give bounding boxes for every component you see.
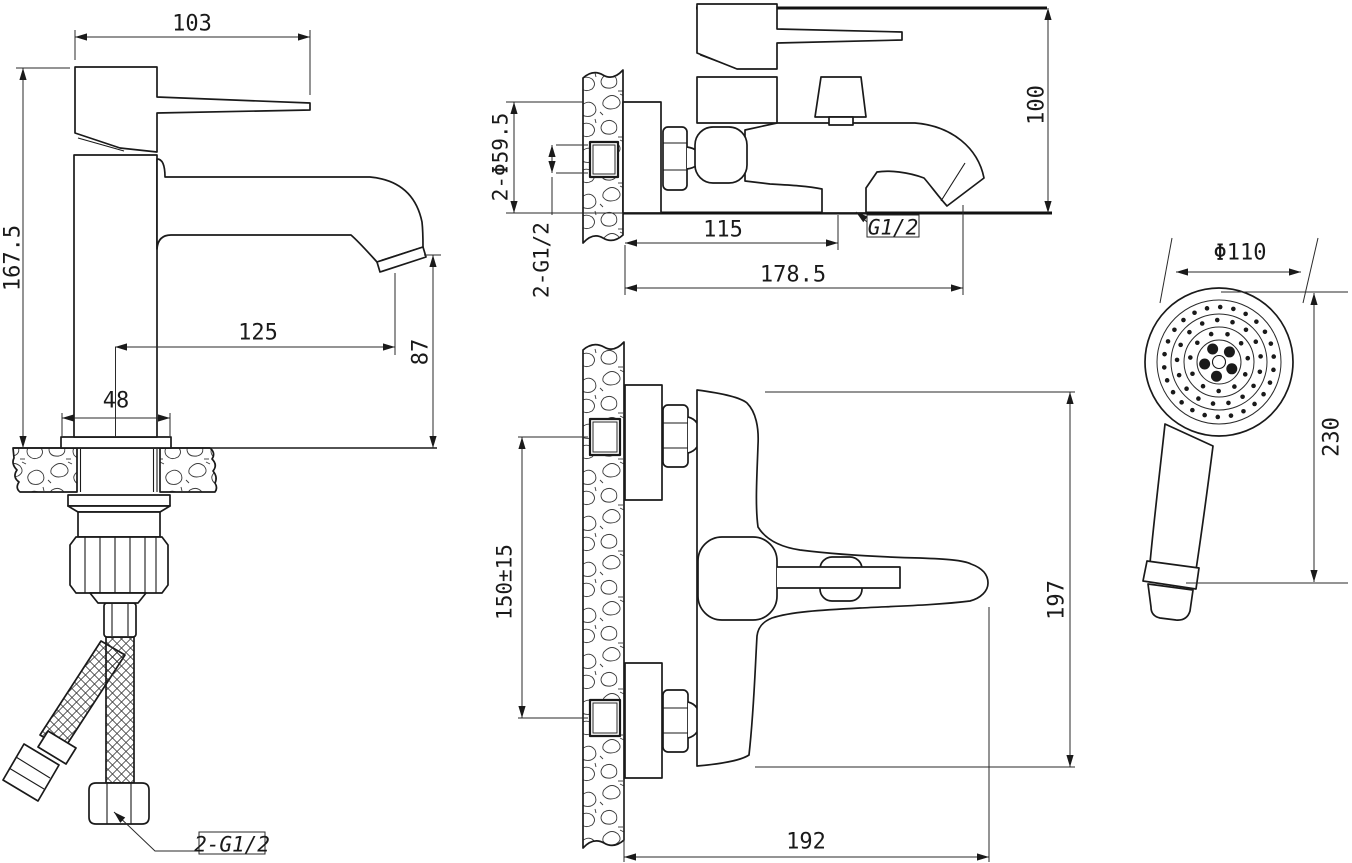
- drawing-sheet: 103 167.5 125 87: [0, 0, 1352, 863]
- wall-inlet-lower: [590, 700, 620, 736]
- shower-head: [1145, 288, 1293, 436]
- dim-text-spout-reach-side: 178.5: [760, 263, 826, 288]
- faucet-handle: [75, 67, 310, 152]
- faucet-spout: [157, 159, 423, 262]
- handle-lever-front: [777, 567, 900, 588]
- connection-nut-lower: [663, 690, 700, 752]
- dim-text-spout-height: 87: [409, 339, 434, 366]
- valve-body-side: [697, 77, 777, 123]
- hose-top-nut: [104, 603, 136, 637]
- shower-handle: [1143, 424, 1213, 620]
- ball-joint-cover: [695, 127, 747, 183]
- connection-nut-upper: [663, 405, 700, 467]
- dim-text-spout-reach: 125: [238, 321, 278, 346]
- escutcheon-side: [623, 102, 661, 213]
- dim-text-escutcheon-diameter: 2-Φ59.5: [488, 113, 512, 202]
- handle-inlet-nut: [1148, 584, 1193, 620]
- dim-height-above-datum: 100: [1025, 8, 1052, 213]
- dim-shower-outlet-offset: 115: [625, 215, 838, 250]
- dim-text-total-height: 167.5: [1, 225, 26, 291]
- escutcheon-lower: [625, 663, 662, 778]
- label-text-shower-outlet-thread: G1/2: [868, 215, 919, 239]
- mixer-handle-side: [697, 4, 902, 69]
- knurled-nut: [70, 537, 168, 593]
- threaded-shank: [77, 449, 157, 492]
- escutcheon-upper: [625, 385, 662, 500]
- supply-hose-vertical: [89, 603, 149, 824]
- wall-inlet-fitting: [590, 142, 618, 177]
- dim-text-handle-length: 103: [172, 12, 212, 37]
- diverter-knob: [815, 77, 866, 125]
- view-basin-faucet-side: 103 167.5 125 87: [1, 12, 441, 857]
- dim-text-head-diameter: Φ110: [1214, 241, 1267, 266]
- dim-text-inlet-thread: 2-G1/2: [529, 222, 553, 298]
- dim-inlet-spacing: 150±15: [492, 437, 588, 718]
- mounting-hardware: [68, 495, 170, 603]
- view-bath-mixer-side: 100 2-Φ59.5 2-G1/2 115: [488, 4, 1052, 298]
- dim-spout-height: 87: [409, 255, 441, 448]
- dim-total-height: 167.5: [1, 68, 70, 448]
- wall-inlet-upper: [590, 419, 620, 455]
- dim-text-overall-height: 197: [1045, 580, 1070, 620]
- dim-text-total-length: 230: [1320, 417, 1345, 457]
- lock-washer: [68, 495, 170, 506]
- countertop-section: [13, 448, 437, 492]
- view-bath-mixer-front: 150±15 197 192: [492, 342, 1075, 862]
- mixer-spout-side: [745, 123, 984, 213]
- label-text-supply-hose-thread: 2-G1/2: [194, 832, 270, 856]
- mounting-flange: [61, 437, 171, 448]
- dim-text-height-above-datum: 100: [1025, 85, 1050, 125]
- dim-inlet-thread: 2-G1/2: [529, 145, 588, 298]
- dim-text-inlet-spacing: 150±15: [492, 544, 516, 620]
- technical-drawing-canvas: 103 167.5 125 87: [0, 0, 1352, 863]
- dim-text-shower-outlet-offset: 115: [703, 218, 743, 243]
- view-hand-shower: Φ110 230: [1143, 238, 1348, 620]
- dim-text-base-width: 48: [103, 389, 130, 414]
- shank-cylinder: [78, 512, 160, 537]
- dim-text-overall-width: 192: [786, 830, 826, 855]
- ball-joint-cover-front: [698, 537, 777, 620]
